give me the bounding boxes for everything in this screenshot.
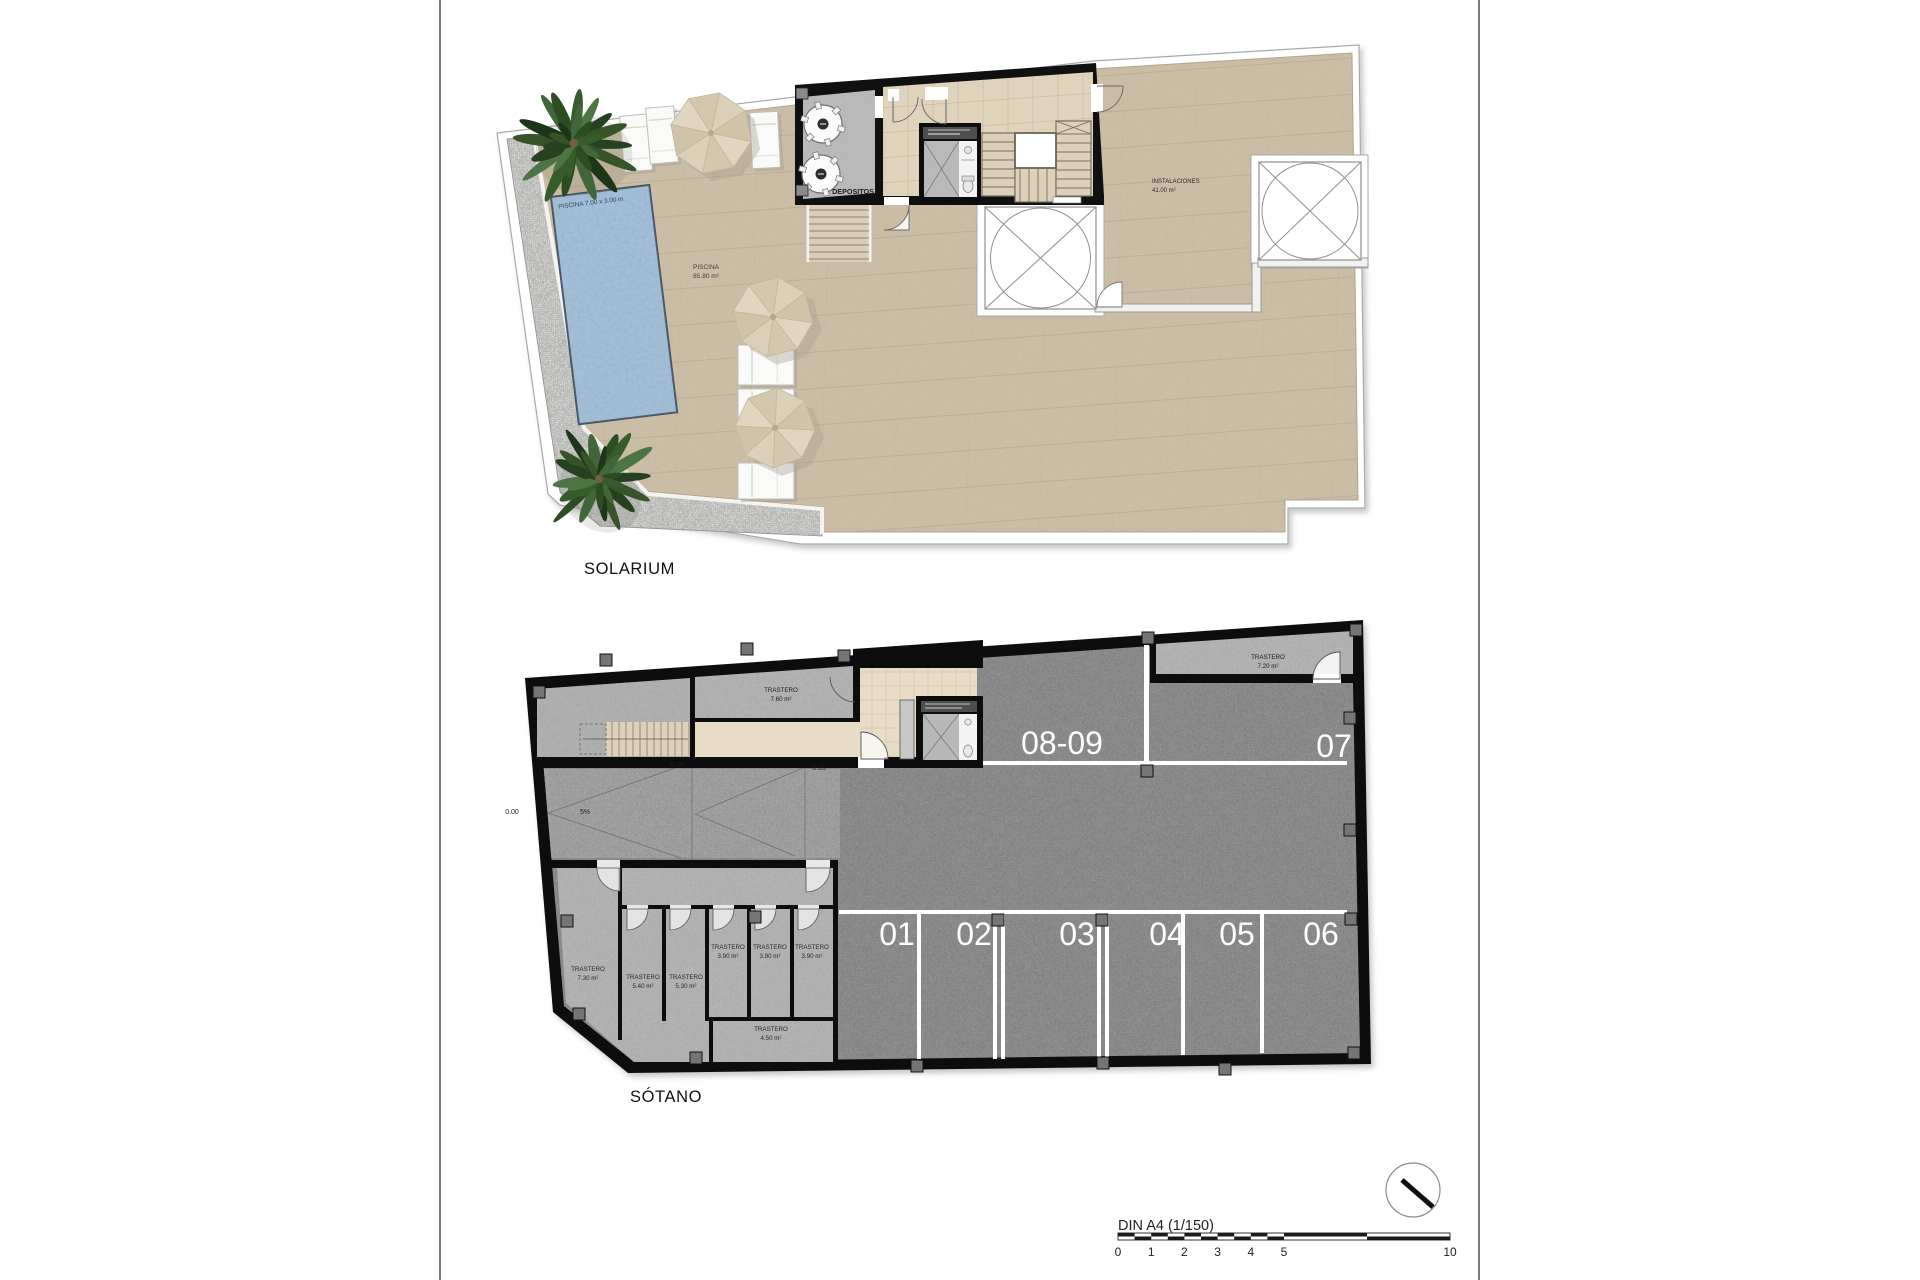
- svg-text:TRASTERO: TRASTERO: [626, 974, 660, 981]
- svg-text:05: 05: [1219, 916, 1255, 952]
- svg-text:04: 04: [1149, 916, 1185, 952]
- svg-text:5.40 m²: 5.40 m²: [633, 983, 654, 990]
- svg-text:TRASTERO: TRASTERO: [764, 687, 798, 694]
- svg-text:0: 0: [1115, 1245, 1122, 1259]
- svg-text:08-09: 08-09: [1021, 725, 1103, 761]
- svg-text:3.90 m²: 3.90 m²: [718, 953, 739, 960]
- svg-text:TRASTERO: TRASTERO: [795, 944, 829, 951]
- svg-text:03: 03: [1059, 916, 1095, 952]
- svg-text:4: 4: [1247, 1245, 1254, 1259]
- svg-text:5: 5: [1281, 1245, 1288, 1259]
- svg-text:3.90 m²: 3.90 m²: [760, 953, 781, 960]
- svg-text:-0.65: -0.65: [810, 765, 826, 772]
- svg-text:2: 2: [1181, 1245, 1188, 1259]
- svg-text:41.00 m²: 41.00 m²: [1152, 188, 1176, 194]
- svg-text:85.80 m²: 85.80 m²: [693, 273, 719, 280]
- svg-text:1: 1: [1148, 1245, 1155, 1259]
- svg-text:PISCINA: PISCINA: [693, 264, 720, 271]
- svg-text:7.60 m²: 7.60 m²: [771, 696, 792, 703]
- svg-text:SÓTANO: SÓTANO: [630, 1087, 702, 1106]
- svg-text:5%: 5%: [580, 809, 590, 816]
- svg-text:SOLARIUM: SOLARIUM: [584, 560, 675, 578]
- svg-text:INSTALACIONES: INSTALACIONES: [1152, 179, 1200, 185]
- svg-text:01: 01: [879, 916, 915, 952]
- svg-text:5.30 m²: 5.30 m²: [676, 983, 697, 990]
- svg-text:4.50 m²: 4.50 m²: [761, 1035, 782, 1042]
- svg-text:02: 02: [956, 916, 992, 952]
- svg-text:07: 07: [1316, 728, 1352, 764]
- svg-text:TRASTERO: TRASTERO: [711, 944, 745, 951]
- svg-text:3: 3: [1214, 1245, 1221, 1259]
- svg-text:TRASTERO: TRASTERO: [1251, 654, 1285, 661]
- svg-text:10: 10: [1443, 1245, 1457, 1259]
- svg-text:3.90 m²: 3.90 m²: [802, 953, 823, 960]
- svg-text:TRASTERO: TRASTERO: [754, 1026, 788, 1033]
- svg-text:0.00: 0.00: [505, 809, 519, 816]
- svg-text:-0.25: -0.25: [668, 762, 684, 769]
- svg-text:TRASTERO: TRASTERO: [669, 974, 703, 981]
- svg-text:DEPOSITOS: DEPOSITOS: [832, 187, 874, 196]
- svg-text:7.30 m²: 7.30 m²: [578, 975, 599, 982]
- svg-text:DIN A4 (1/150): DIN A4 (1/150): [1118, 1218, 1214, 1234]
- svg-text:06: 06: [1303, 916, 1339, 952]
- svg-text:TRASTERO: TRASTERO: [571, 966, 605, 973]
- svg-text:7.20 m²: 7.20 m²: [1258, 663, 1279, 670]
- svg-text:TRASTERO: TRASTERO: [753, 944, 787, 951]
